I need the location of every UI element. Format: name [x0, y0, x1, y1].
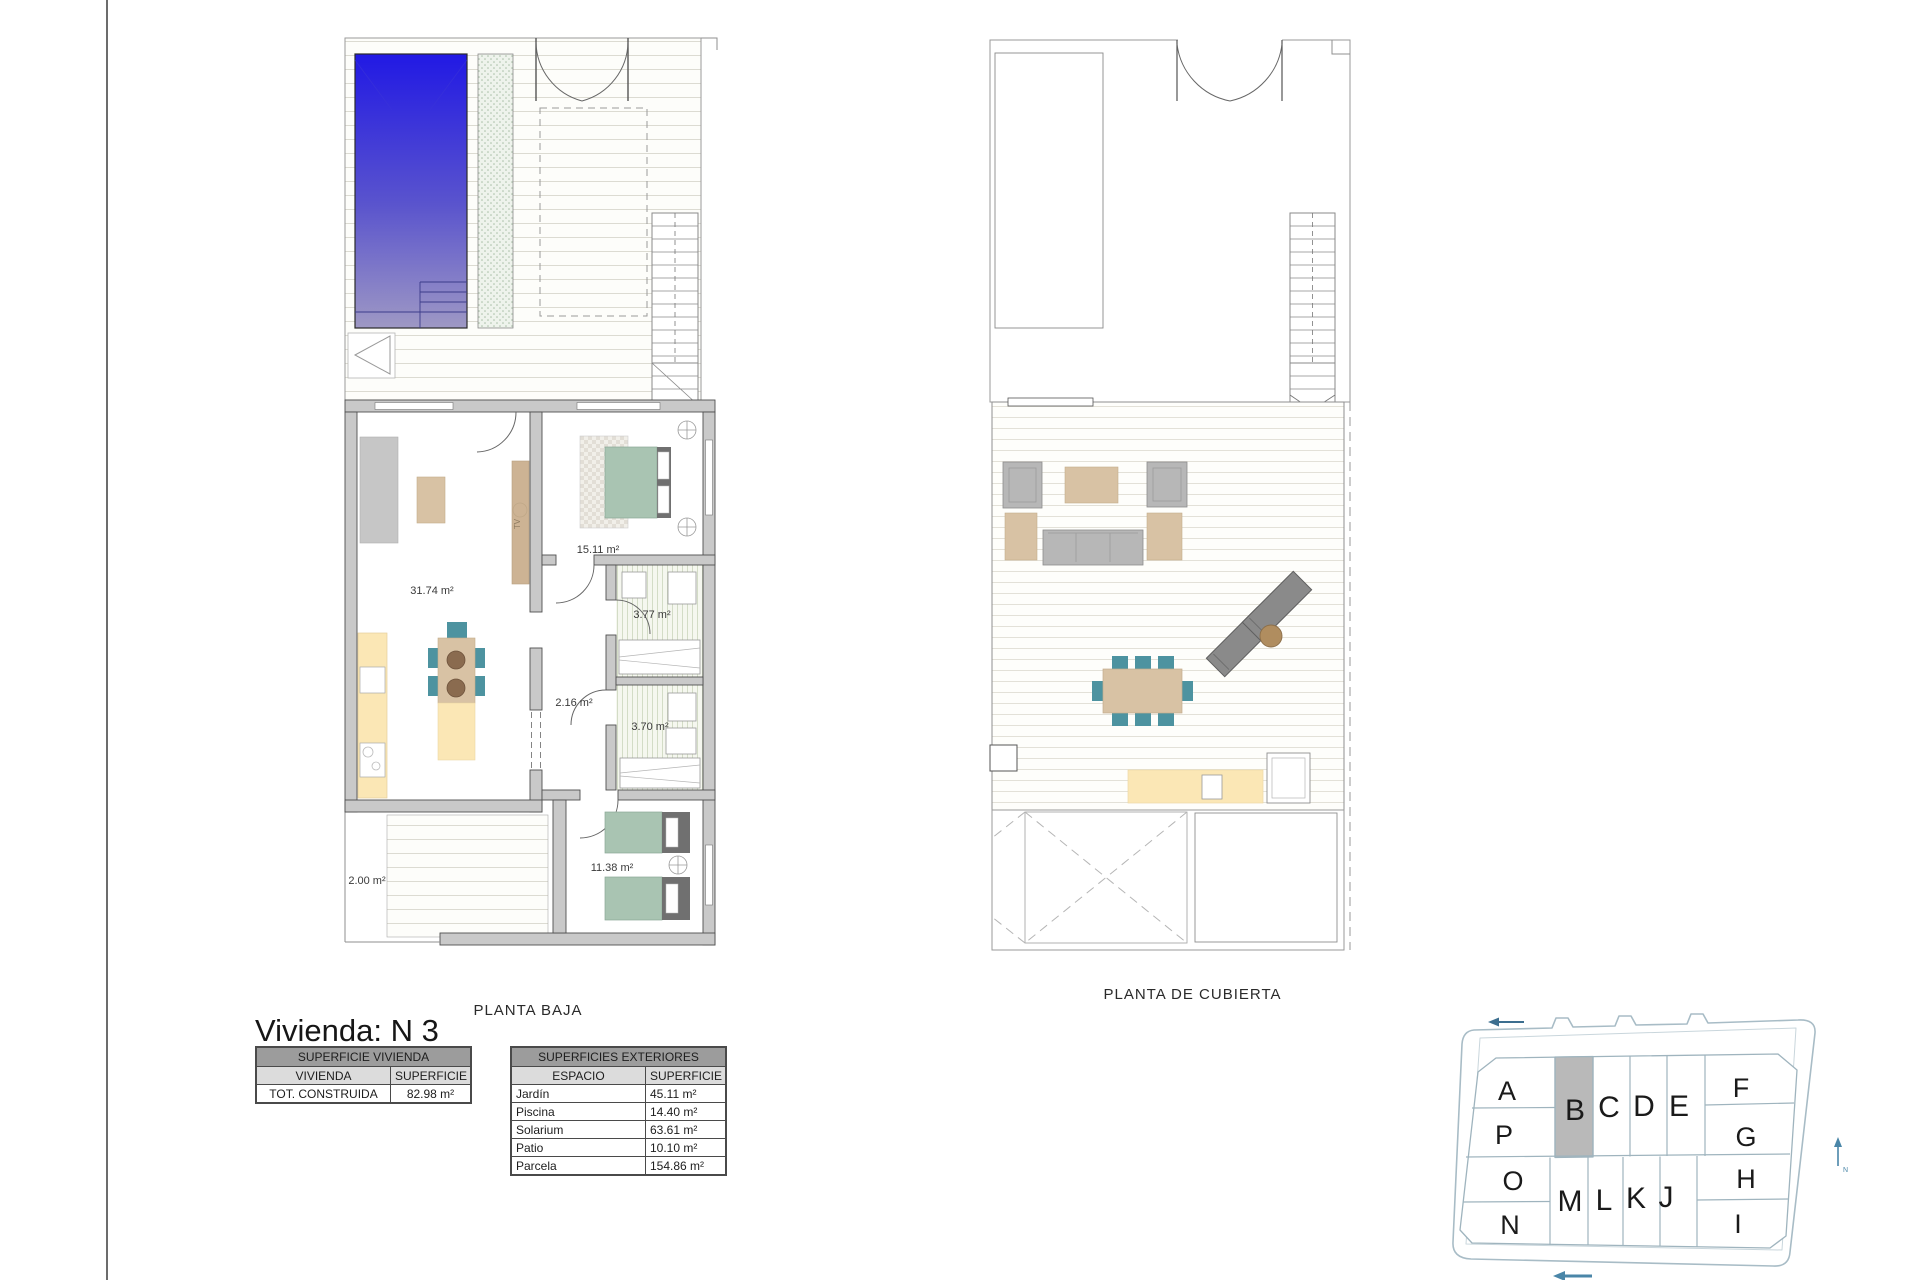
- table-row: Solarium 63.61 m²: [512, 1121, 725, 1139]
- place-setting: [447, 679, 465, 697]
- dining-chair: [447, 622, 467, 638]
- dining-chair: [428, 648, 438, 668]
- room-area-bedroom2: 11.38 m²: [591, 862, 634, 874]
- dining-chair: [1092, 681, 1103, 701]
- sink: [668, 693, 696, 721]
- room-area-hall: 2.16 m²: [555, 697, 593, 709]
- room-area-bedroom1: 15.11 m²: [577, 544, 620, 556]
- side-table: [1260, 625, 1282, 647]
- cell-superficie: 14.40 m²: [646, 1103, 725, 1120]
- toilet: [622, 572, 646, 598]
- plot-label-J: J: [1659, 1181, 1674, 1214]
- dining-chair: [1112, 656, 1128, 669]
- ceiling-light-icon: [678, 518, 696, 536]
- dining-chair: [1158, 713, 1174, 726]
- ceiling-light-icon: [678, 421, 696, 439]
- plot-label-P: P: [1495, 1120, 1513, 1150]
- pouf: [1147, 513, 1182, 560]
- table-row: Patio 10.10 m²: [512, 1139, 725, 1157]
- room-area-living: 31.74 m²: [410, 585, 454, 597]
- sink: [1202, 775, 1222, 799]
- cell-concept: TOT. CONSTRUIDA: [257, 1085, 391, 1102]
- cell-espacio: Parcela: [512, 1157, 646, 1174]
- window: [706, 845, 713, 905]
- dining-chair: [1135, 713, 1151, 726]
- cooktop: [360, 743, 385, 777]
- pillow: [666, 884, 678, 913]
- sink: [668, 572, 696, 604]
- arrow-bottom-icon: [1553, 1271, 1592, 1280]
- col-header-superficie: SUPERFICIE: [646, 1067, 725, 1084]
- door-opening: [1178, 36, 1282, 44]
- plot-label-A: A: [1498, 1076, 1516, 1106]
- plot-label-L: L: [1596, 1184, 1613, 1217]
- cell-espacio: Jardín: [512, 1085, 646, 1102]
- caption-planta-cubierta: PLANTA DE CUBIERTA: [1085, 986, 1300, 1003]
- dining-chair: [475, 648, 485, 668]
- room-area-bath1: 3.77 m²: [633, 609, 671, 621]
- place-setting: [447, 651, 465, 669]
- patio-deck: [387, 815, 548, 937]
- roof-box: [1195, 813, 1337, 942]
- dining-table: [1103, 669, 1182, 713]
- roof-void: [995, 53, 1103, 328]
- outdoor-counter: [1128, 770, 1263, 803]
- cell-value: 82.98 m²: [391, 1085, 470, 1102]
- window: [1008, 398, 1093, 406]
- roof-stairs: [1290, 213, 1335, 410]
- pouf: [1005, 513, 1037, 560]
- pool: [355, 54, 467, 328]
- double-bed: [605, 447, 657, 518]
- tv-label: TV: [513, 518, 522, 529]
- plot-label-C: C: [1598, 1091, 1620, 1124]
- coffee-table: [417, 477, 445, 523]
- pillow: [666, 818, 678, 847]
- coffee-table: [1065, 467, 1118, 503]
- dining-chair: [1112, 713, 1128, 726]
- sofa: [360, 437, 398, 543]
- col-header-superficie: SUPERFICIE: [391, 1067, 470, 1084]
- pillow: [658, 452, 669, 479]
- table-row: Jardín 45.11 m²: [512, 1085, 725, 1103]
- plot-label-F: F: [1733, 1073, 1750, 1103]
- table-header-row: ESPACIO SUPERFICIE: [512, 1067, 725, 1085]
- outdoor-sofa: [1043, 530, 1143, 565]
- col-header-vivienda: VIVIENDA: [257, 1067, 391, 1084]
- table-row: Parcela 154.86 m²: [512, 1157, 725, 1174]
- col-header-espacio: ESPACIO: [512, 1067, 646, 1084]
- cell-espacio: Solarium: [512, 1121, 646, 1138]
- cell-espacio: Piscina: [512, 1103, 646, 1120]
- pillow: [658, 486, 669, 513]
- site-plan: A P B C D E F G O N M L K J H I: [1453, 1014, 1848, 1280]
- plot-label-O: O: [1502, 1166, 1523, 1196]
- plot-label-I: I: [1734, 1209, 1742, 1239]
- window: [706, 440, 713, 515]
- kitchen-island: [438, 703, 475, 760]
- room-area-patio: 2.00 m²: [348, 875, 386, 887]
- ceiling-light-icon: [669, 856, 687, 874]
- plot-label-E: E: [1669, 1090, 1689, 1123]
- plan-planta-baja: TV: [345, 38, 717, 945]
- table-title: SUPERFICIES EXTERIORES: [512, 1048, 725, 1067]
- cell-superficie: 63.61 m²: [646, 1121, 725, 1138]
- table-superficies-exteriores: SUPERFICIES EXTERIORES ESPACIO SUPERFICI…: [510, 1046, 727, 1176]
- cell-superficie: 154.86 m²: [646, 1157, 725, 1174]
- plan-sheet: TV: [0, 0, 1920, 1280]
- cell-superficie: 45.11 m²: [646, 1085, 725, 1102]
- garden-area: [345, 38, 717, 405]
- cell-espacio: Patio: [512, 1139, 646, 1156]
- dining-chair: [1135, 656, 1151, 669]
- dining-chair: [475, 676, 485, 696]
- storage: [1267, 753, 1310, 803]
- plot-label-B: B: [1565, 1094, 1585, 1127]
- caption-planta-baja: PLANTA BAJA: [448, 1002, 608, 1019]
- dining-chair: [1158, 656, 1174, 669]
- single-bed: [605, 877, 662, 920]
- plan-planta-cubierta: [990, 36, 1350, 950]
- table-row: TOT. CONSTRUIDA 82.98 m²: [257, 1085, 470, 1102]
- planter-strip: [478, 54, 513, 328]
- plot-label-G: G: [1735, 1122, 1756, 1152]
- svg-text:N: N: [1843, 1167, 1848, 1174]
- table-row: Piscina 14.40 m²: [512, 1103, 725, 1121]
- kitchen-sink: [360, 667, 385, 693]
- arrow-top-icon: [1488, 1018, 1524, 1027]
- table-title: SUPERFICIE VIVIENDA: [257, 1048, 470, 1067]
- table-superficie-vivienda: SUPERFICIE VIVIENDA VIVIENDA SUPERFICIE …: [255, 1046, 472, 1104]
- room-area-bath2: 3.70 m²: [631, 721, 669, 733]
- shower-tray: [619, 640, 700, 674]
- dining-chair: [428, 676, 438, 696]
- toilet: [666, 728, 696, 754]
- house-interior: TV: [345, 400, 715, 945]
- garden-gate: [348, 333, 395, 378]
- shower-tray: [620, 758, 700, 788]
- garden-stairs: [652, 213, 698, 405]
- plot-label-N: N: [1500, 1210, 1520, 1240]
- window: [577, 403, 660, 410]
- utility-box: [990, 745, 1017, 771]
- roof-lower-section: [992, 810, 1344, 950]
- cell-superficie: 10.10 m²: [646, 1139, 725, 1156]
- arrow-right-icon: N: [1834, 1137, 1848, 1174]
- plot-label-D: D: [1633, 1090, 1655, 1123]
- plot-label-K: K: [1626, 1182, 1646, 1215]
- table-header-row: VIVIENDA SUPERFICIE: [257, 1067, 470, 1085]
- window: [375, 403, 453, 410]
- dining-chair: [1182, 681, 1193, 701]
- plot-label-H: H: [1736, 1164, 1756, 1194]
- plot-label-M: M: [1558, 1185, 1583, 1218]
- single-bed: [605, 812, 662, 853]
- page-title: Vivienda: N 3: [255, 1013, 439, 1049]
